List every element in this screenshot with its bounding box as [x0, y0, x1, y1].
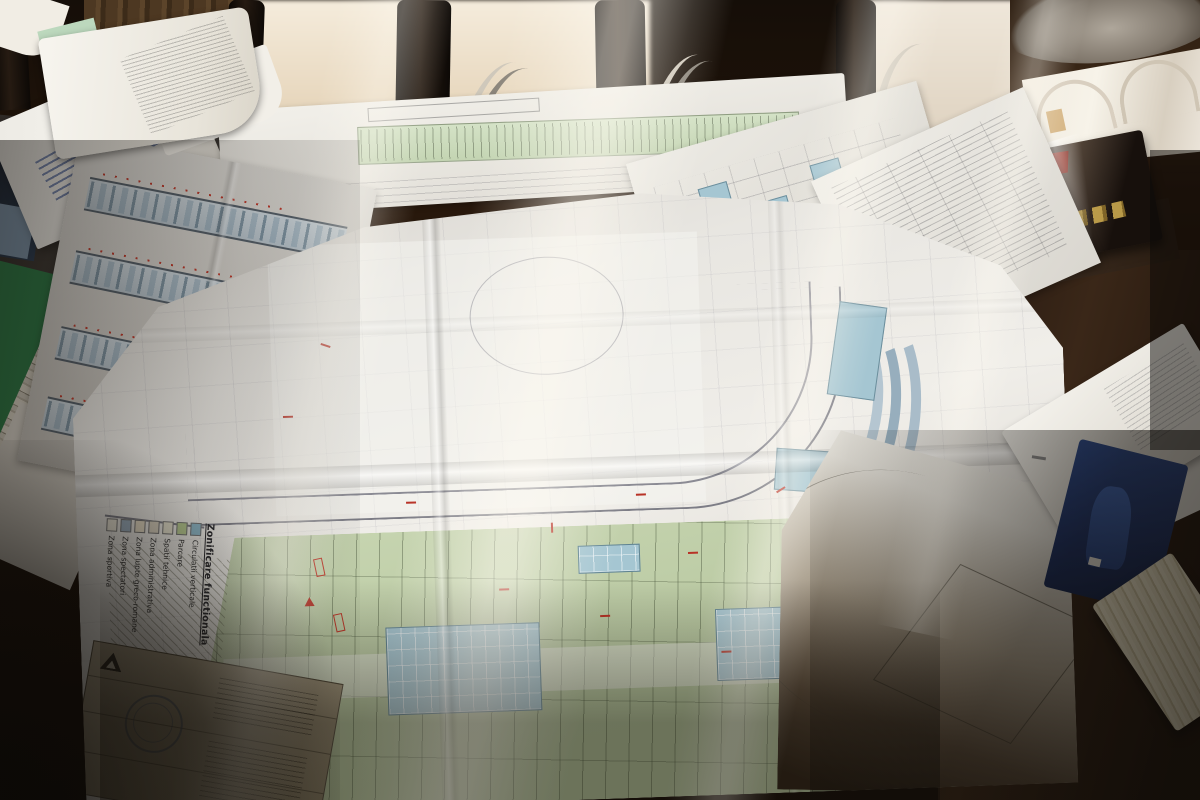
photo-plans-on-table: Zonificare functionala Circulatii vertic… [0, 0, 1200, 800]
legend-swatch [148, 520, 160, 534]
legend-label: Zona lupte greco-romane [130, 537, 144, 633]
legend-label: Circulatii verticale [187, 540, 200, 608]
staple-icon [1032, 455, 1046, 460]
legend-label: Zona sportiva [104, 535, 116, 587]
highlighted-room-block [578, 544, 641, 574]
title-block-text [212, 678, 318, 739]
plan-top-outline [367, 98, 540, 122]
red-annotation [551, 523, 553, 533]
red-annotation [600, 615, 610, 617]
title-block-text [199, 741, 307, 800]
legend-swatch [120, 519, 132, 533]
red-annotation [636, 493, 646, 495]
legend-label: Parcare [175, 539, 185, 567]
legend-label: Spatii tehnice [160, 538, 172, 590]
legend-swatch [176, 522, 188, 536]
legend-swatch [106, 518, 118, 532]
red-annotation [406, 501, 416, 503]
red-annotation [721, 651, 731, 653]
highlighted-room-block [385, 622, 542, 715]
red-annotation [499, 588, 509, 590]
legend-swatch [190, 523, 202, 537]
legend-swatch [162, 521, 174, 535]
red-annotation [283, 416, 293, 418]
legend-label: Zona spectatori [118, 536, 130, 595]
legend-label: Zona administrativa [145, 537, 158, 613]
legend-swatch [134, 520, 146, 534]
red-annotation [688, 552, 698, 554]
red-triangle-marker [304, 597, 314, 606]
legend-rotated-block: Zonificare functionala Circulatii vertic… [91, 518, 216, 662]
page-text-lines [120, 16, 255, 135]
